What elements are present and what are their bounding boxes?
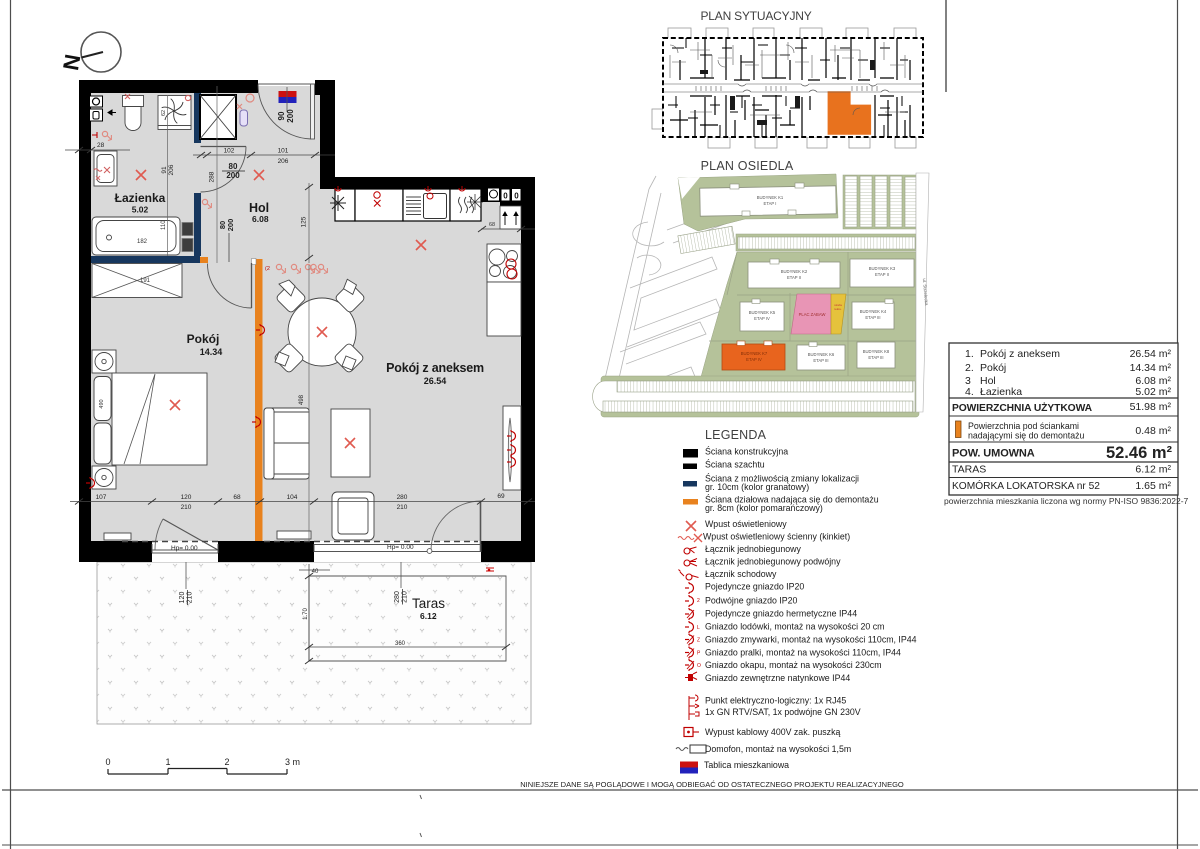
svg-text:210: 210 — [397, 504, 408, 511]
svg-text:gr. 10cm (kolor granatowy): gr. 10cm (kolor granatowy) — [705, 482, 809, 492]
svg-text:Ściana szachtu: Ściana szachtu — [705, 459, 765, 470]
svg-text:ETAP IV: ETAP IV — [754, 316, 770, 321]
svg-text:51.98 m²: 51.98 m² — [1130, 401, 1172, 413]
svg-text:68: 68 — [233, 494, 241, 501]
svg-text:2: 2 — [224, 757, 229, 767]
svg-text:91: 91 — [161, 166, 168, 174]
svg-text:BUDYNEK K8: BUDYNEK K8 — [863, 349, 890, 354]
svg-text:14.34 m²: 14.34 m² — [1130, 362, 1172, 374]
svg-text:26.54: 26.54 — [424, 376, 447, 386]
svg-text:26.54 m²: 26.54 m² — [1130, 348, 1172, 360]
svg-text:1x GN RTV/SAT, 1x podwójne GN: 1x GN RTV/SAT, 1x podwójne GN 230V — [705, 707, 861, 717]
svg-text:powierzchnia mieszkania liczon: powierzchnia mieszkania liczona wg normy… — [944, 496, 1189, 506]
svg-text:Gniazdo pralki, montaż na wyso: Gniazdo pralki, montaż na wysokości 110c… — [705, 648, 901, 658]
svg-text:Taras: Taras — [412, 596, 445, 611]
svg-text:Podwójne gniazdo IP20: Podwójne gniazdo IP20 — [705, 596, 798, 606]
svg-text:120: 120 — [181, 494, 192, 501]
svg-text:206: 206 — [278, 158, 289, 165]
svg-text:200: 200 — [286, 109, 295, 123]
svg-text:Wypust kablowy 400V zak. puszk: Wypust kablowy 400V zak. puszką — [705, 727, 840, 737]
svg-text:280: 280 — [397, 494, 408, 501]
svg-text:498: 498 — [299, 394, 305, 405]
svg-text:Łącznik jednobiegunowy podwójn: Łącznik jednobiegunowy podwójny — [705, 557, 841, 567]
svg-text:101: 101 — [278, 148, 289, 155]
svg-text:Pokój: Pokój — [187, 332, 220, 346]
svg-text:PLAN OSIEDLA: PLAN OSIEDLA — [701, 159, 794, 173]
svg-text:Pokój: Pokój — [980, 362, 1006, 374]
svg-text:6.08: 6.08 — [252, 214, 269, 224]
svg-text:Łącznik schodowy: Łącznik schodowy — [705, 569, 777, 579]
svg-text:1.65 m²: 1.65 m² — [1135, 480, 1171, 492]
svg-text:5.02 m²: 5.02 m² — [1135, 386, 1171, 398]
svg-text:Wpust oświetleniowy ścienny (k: Wpust oświetleniowy ścienny (kinkiet) — [703, 532, 850, 542]
svg-text:0: 0 — [514, 192, 519, 201]
svg-text:ETAP I: ETAP I — [764, 201, 777, 206]
svg-text:69: 69 — [497, 493, 505, 500]
svg-text:200: 200 — [226, 171, 240, 180]
svg-text:125: 125 — [301, 216, 308, 227]
svg-text:2.: 2. — [965, 362, 974, 374]
svg-text:Gniazdo zmywarki, montaż na wy: Gniazdo zmywarki, montaż na wysokości 11… — [705, 635, 917, 645]
svg-text:(2: (2 — [265, 266, 270, 272]
svg-text:Łazienka: Łazienka — [115, 191, 166, 205]
svg-text:191: 191 — [140, 278, 151, 284]
svg-text:Pokój z aneksem: Pokój z aneksem — [980, 348, 1060, 360]
svg-text:0.48 m²: 0.48 m² — [1135, 425, 1171, 437]
svg-text:360: 360 — [395, 641, 406, 647]
svg-text:6.12: 6.12 — [420, 611, 437, 621]
svg-text:Gniazdo zewnętrzne natynkowe I: Gniazdo zewnętrzne natynkowe IP44 — [705, 673, 850, 683]
svg-text:O: O — [697, 663, 701, 669]
svg-text:6.12 m²: 6.12 m² — [1135, 464, 1171, 476]
svg-text:102: 102 — [224, 148, 235, 155]
svg-text:POWIERZCHNIA UŻYTKOWA: POWIERZCHNIA UŻYTKOWA — [952, 401, 1093, 414]
svg-text:Domofon, montaż na wysokości 1: Domofon, montaż na wysokości 1,5m — [705, 744, 851, 754]
svg-text:LEGENDA: LEGENDA — [705, 428, 767, 442]
svg-text:BUDYNEK K6: BUDYNEK K6 — [808, 352, 835, 357]
svg-text:Pokój z aneksem: Pokój z aneksem — [386, 361, 484, 375]
svg-text:Punkt elektryczno-logiczny: 1x: Punkt elektryczno-logiczny: 1x RJ45 — [705, 696, 846, 706]
svg-text:110: 110 — [161, 220, 167, 230]
svg-text:Hol: Hol — [249, 201, 269, 215]
svg-text:Łazienka: Łazienka — [980, 386, 1022, 398]
svg-text:14.34: 14.34 — [200, 347, 223, 357]
svg-text:Tablica mieszkaniowa: Tablica mieszkaniowa — [704, 760, 789, 770]
svg-text:Pojedyncze gniazdo IP20: Pojedyncze gniazdo IP20 — [705, 582, 804, 592]
svg-text:Hp= 0.00: Hp= 0.00 — [171, 545, 198, 552]
svg-text:Pojedyncze gniazdo hermetyczne: Pojedyncze gniazdo hermetyczne IP44 — [705, 609, 857, 619]
svg-text:ETAP IV: ETAP IV — [746, 357, 762, 362]
svg-text:Wpust oświetleniowy: Wpust oświetleniowy — [705, 519, 787, 529]
svg-text:ETAP II: ETAP II — [875, 272, 889, 277]
svg-text:120: 120 — [179, 592, 186, 604]
svg-text:40: 40 — [312, 569, 319, 575]
svg-text:BUDYNEK K7: BUDYNEK K7 — [741, 351, 768, 356]
svg-text:BUDYNEK K3: BUDYNEK K3 — [869, 266, 896, 271]
svg-text:280: 280 — [394, 591, 401, 603]
svg-text:210: 210 — [181, 504, 192, 511]
svg-text:PLAC ZABAW: PLAC ZABAW — [799, 312, 826, 317]
svg-text:L: L — [697, 625, 700, 631]
svg-text:52.46 m²: 52.46 m² — [1106, 444, 1173, 462]
svg-text:gr. 8cm (kolor pomarańczowy): gr. 8cm (kolor pomarańczowy) — [705, 503, 823, 513]
svg-text:Powierzchnia pod ściankami: Powierzchnia pod ściankami — [968, 421, 1079, 431]
svg-text:90: 90 — [277, 111, 286, 120]
svg-text:3 m: 3 m — [285, 757, 300, 767]
svg-text:0: 0 — [105, 757, 110, 767]
svg-text:nadającymi się do demontażu: nadającymi się do demontażu — [968, 431, 1084, 441]
svg-text:200: 200 — [226, 219, 235, 232]
svg-text:Hp= 0.00: Hp= 0.00 — [387, 544, 414, 551]
svg-text:Łącznik jednobiegunowy: Łącznik jednobiegunowy — [705, 544, 801, 554]
svg-text:KOMÓRKA LOKATORSKA nr 52: KOMÓRKA LOKATORSKA nr 52 — [952, 479, 1100, 492]
svg-text:206: 206 — [168, 164, 175, 175]
svg-text:POW. UMOWNA: POW. UMOWNA — [952, 448, 1035, 460]
svg-text:28: 28 — [97, 142, 105, 149]
svg-text:BUDYNEK K5: BUDYNEK K5 — [749, 310, 776, 315]
svg-text:Z: Z — [697, 638, 700, 644]
svg-text:5.02: 5.02 — [132, 205, 149, 215]
svg-text:80: 80 — [229, 162, 238, 171]
svg-text:182: 182 — [137, 239, 148, 245]
svg-text:BUDYNEK K1: BUDYNEK K1 — [757, 195, 784, 200]
svg-text:TARAS: TARAS — [952, 464, 986, 476]
svg-text:0: 0 — [503, 192, 508, 201]
svg-text:ETAP III: ETAP III — [813, 358, 828, 363]
svg-text:62: 62 — [161, 110, 167, 116]
svg-text:BUDYNEK K2: BUDYNEK K2 — [781, 269, 808, 274]
svg-text:4.: 4. — [965, 386, 974, 398]
svg-text:Gniazdo lodówki, montaż na wys: Gniazdo lodówki, montaż na wysokości 20 … — [705, 622, 884, 632]
svg-text:Ściana konstrukcyjna: Ściana konstrukcyjna — [705, 446, 788, 457]
svg-text:BUDYNEK K4: BUDYNEK K4 — [860, 309, 887, 314]
svg-text:1.70: 1.70 — [303, 608, 309, 620]
svg-text:288: 288 — [209, 171, 216, 182]
svg-text:Gniazdo okapu, montaż na wysok: Gniazdo okapu, montaż na wysokości 230cm — [705, 660, 882, 670]
svg-text:490: 490 — [99, 399, 105, 408]
svg-text:ETAP II: ETAP II — [787, 275, 801, 280]
svg-text:rekre.: rekre. — [834, 307, 842, 311]
svg-text:1.: 1. — [965, 348, 974, 360]
svg-text:ETAP III: ETAP III — [868, 355, 883, 360]
svg-text:2: 2 — [697, 598, 700, 604]
svg-text:ETAP III: ETAP III — [865, 315, 880, 320]
svg-text:107: 107 — [96, 494, 107, 501]
svg-text:NINIEJSZE DANE SĄ POGLĄDOWE I: NINIEJSZE DANE SĄ POGLĄDOWE I MOGĄ ODBIE… — [520, 780, 904, 789]
svg-text:68: 68 — [489, 222, 495, 228]
svg-text:1: 1 — [165, 757, 170, 767]
svg-text:PLAN SYTUACYJNY: PLAN SYTUACYJNY — [700, 9, 811, 23]
svg-text:104: 104 — [287, 494, 298, 501]
